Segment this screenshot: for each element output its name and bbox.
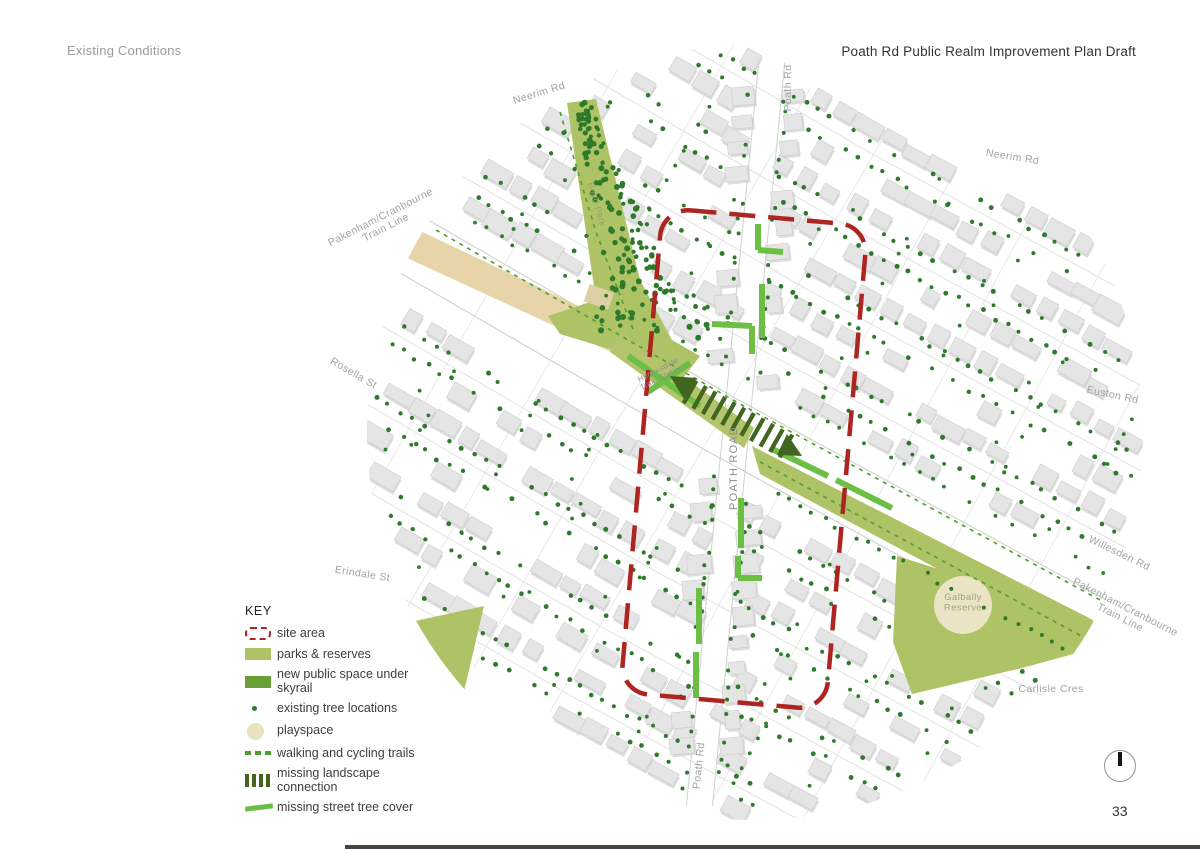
legend-item-missing-street-tree-cover: missing street tree cover — [245, 801, 450, 815]
site-area-swatch-icon — [245, 627, 277, 640]
street-label: Carlisle Cres — [1018, 683, 1083, 695]
street-label: Poath Rd — [782, 65, 794, 112]
skyrail-space-swatch-icon — [245, 676, 277, 688]
next-page-edge — [345, 845, 1200, 849]
street-label: POATH ROAD — [728, 426, 740, 510]
street-label: Rosella St — [328, 355, 379, 391]
map-clipped-content — [17, 0, 1200, 849]
playspace-circle-icon — [245, 723, 277, 740]
map-key: KEY site area parks & reserves new publi… — [245, 604, 450, 815]
legend-item-tree-locations: existing tree locations — [245, 702, 450, 716]
legend-item-parks-reserves: parks & reserves — [245, 648, 450, 662]
hatch-bars-icon — [245, 774, 277, 787]
street-label: Euston Rd — [1086, 384, 1140, 407]
legend-item-missing-landscape-connection: missing landscape connection — [245, 767, 450, 794]
north-arrow-icon — [1104, 750, 1136, 782]
section-label: Existing Conditions — [67, 43, 181, 58]
page-number: 33 — [1112, 803, 1128, 819]
circular-map: Neerim RdPoath RdNeerim RdPakenham/Cranb… — [0, 0, 1200, 849]
street-label: Willesden Rd — [1087, 533, 1152, 573]
street-label: GalballyReserve — [944, 592, 982, 613]
street-label: Erindale St — [334, 564, 391, 585]
street-label: Neerim Rd — [985, 147, 1040, 167]
street-label: Neerim Rd — [512, 80, 567, 107]
legend-item-trails: walking and cycling trails — [245, 747, 450, 761]
tree-dot-icon — [245, 706, 277, 711]
map-figure: Neerim RdPoath RdNeerim RdPakenham/Cranb… — [0, 0, 1200, 849]
green-line-icon — [245, 805, 277, 810]
document-page: Neerim RdPoath RdNeerim RdPakenham/Cranb… — [0, 0, 1200, 849]
trail-dashes-icon — [245, 751, 277, 755]
page-title: Poath Rd Public Realm Improvement Plan D… — [841, 44, 1136, 59]
key-title: KEY — [245, 604, 450, 618]
legend-item-playspace: playspace — [245, 723, 450, 740]
parks-swatch-icon — [245, 648, 277, 660]
legend-item-site-area: site area — [245, 627, 450, 641]
legend-item-new-public-space: new public space under skyrail — [245, 668, 450, 695]
